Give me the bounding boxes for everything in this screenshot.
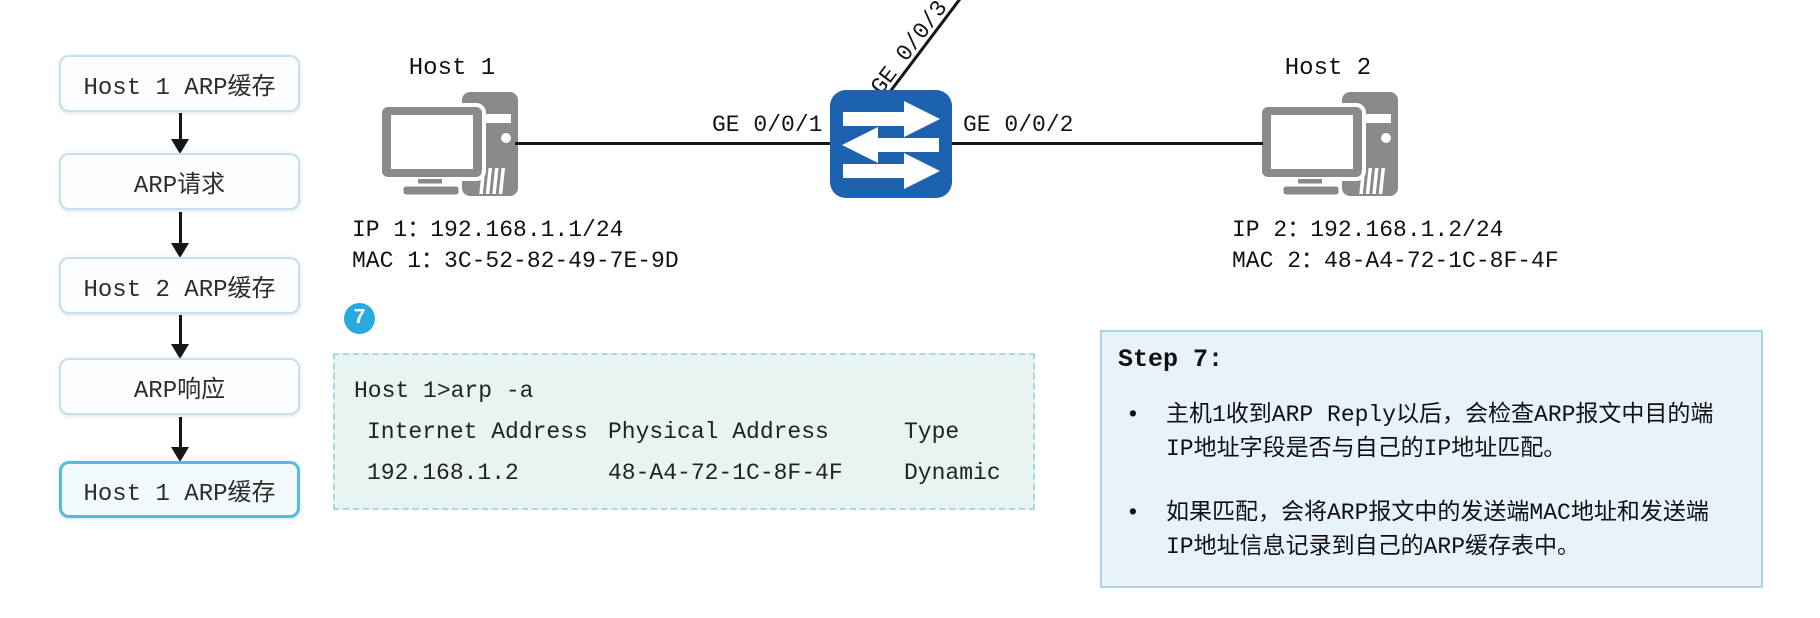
terminal-cell-ip: 192.168.1.2 [367,453,608,494]
host1-ip: IP 1：192.168.1.1/24 [352,215,679,246]
host2-address-block: IP 2：192.168.1.2/24 MAC 2：48-A4-72-1C-8F… [1232,215,1559,277]
bullet-icon: • [1118,496,1166,564]
port-label-ge-0-0-1: GE 0/0/1 [712,112,822,138]
host2-computer-icon [1258,92,1398,197]
flow-step-arp-reply: ARP响应 [59,358,300,415]
down-arrow-icon [171,344,189,359]
bullet-icon: • [1118,398,1166,466]
terminal-command: Host 1>arp -a [354,371,1033,412]
terminal-col-type: Type [904,412,1033,453]
flow-step-host1-arp-cache-2: Host 1 ARP缓存 [59,461,300,518]
step-number-badge: 7 [344,303,375,334]
host1-address-block: IP 1：192.168.1.1/24 MAC 1：3C-52-82-49-7E… [352,215,679,277]
switch-icon [830,90,952,198]
terminal-cell-mac: 48-A4-72-1C-8F-4F [608,453,904,494]
arp-terminal-panel: Host 1>arp -a Internet Address Physical … [333,353,1035,510]
flow-connector [179,212,182,243]
terminal-col-internet-address: Internet Address [367,412,608,453]
host1-label: Host 1 [382,55,522,82]
terminal-cell-type: Dynamic [904,453,1033,494]
step7-description-panel: Step 7: • 主机1收到ARP Reply以后，会检查ARP报文中目的端I… [1100,330,1763,588]
down-arrow-icon [171,139,189,154]
flow-connector [179,417,182,447]
host2-ip: IP 2：192.168.1.2/24 [1232,215,1559,246]
flow-step-host2-arp-cache: Host 2 ARP缓存 [59,257,300,314]
host1-computer-icon [378,92,518,197]
terminal-header-row: Internet Address Physical Address Type [367,412,1033,453]
step7-bullet-1: • 主机1收到ARP Reply以后，会检查ARP报文中目的端IP地址字段是否与… [1118,398,1731,466]
down-arrow-icon [171,243,189,258]
link-host1-switch [515,142,830,145]
down-arrow-icon [171,447,189,462]
flow-connector [179,113,182,139]
host2-mac: MAC 2：48-A4-72-1C-8F-4F [1232,246,1559,277]
step7-bullet-2: • 如果匹配，会将ARP报文中的发送端MAC地址和发送端IP地址信息记录到自己的… [1118,496,1731,564]
terminal-data-row: 192.168.1.2 48-A4-72-1C-8F-4F Dynamic [367,453,1033,494]
link-switch-host2 [952,142,1263,145]
step7-bullet-1-text: 主机1收到ARP Reply以后，会检查ARP报文中目的端IP地址字段是否与自己… [1166,398,1731,466]
arp-step7-slide: Host 1 ARP缓存 ARP请求 Host 2 ARP缓存 ARP响应 Ho… [0,0,1820,618]
host1-mac: MAC 1：3C-52-82-49-7E-9D [352,246,679,277]
terminal-col-physical-address: Physical Address [608,412,904,453]
port-label-ge-0-0-2: GE 0/0/2 [963,112,1073,138]
port-label-ge-0-0-3: GE 0/0/3 [866,0,953,100]
flow-step-arp-request: ARP请求 [59,153,300,210]
flow-step-host1-arp-cache-1: Host 1 ARP缓存 [59,55,300,112]
host2-label: Host 2 [1258,55,1398,82]
flow-connector [179,315,182,344]
step7-bullet-2-text: 如果匹配，会将ARP报文中的发送端MAC地址和发送端IP地址信息记录到自己的AR… [1166,496,1731,564]
step7-title: Step 7: [1118,345,1731,374]
